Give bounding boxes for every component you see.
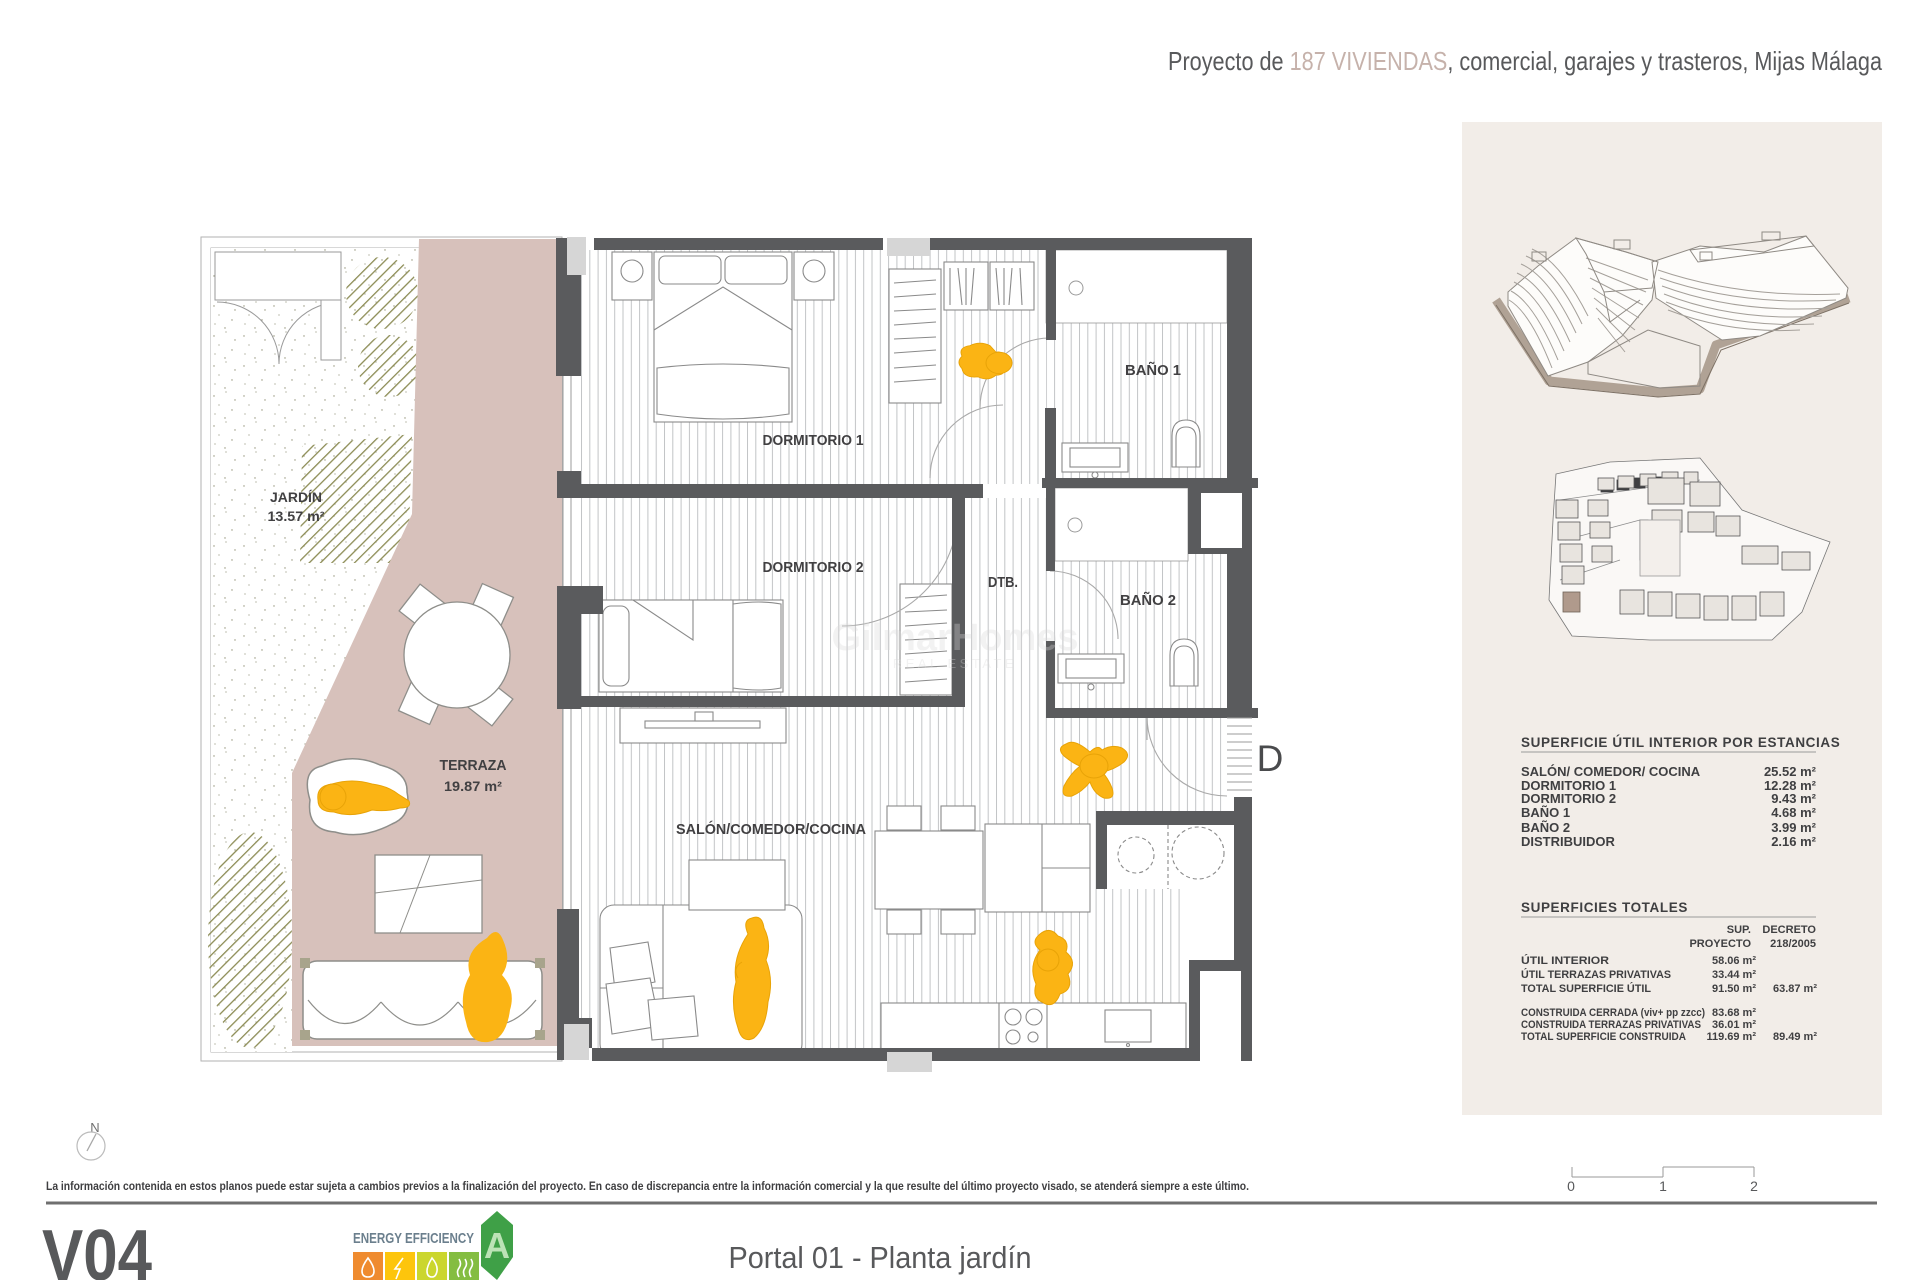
svg-text:DORMITORIO 1: DORMITORIO 1 bbox=[763, 433, 864, 449]
svg-text:ENERGY EFFICIENCY: ENERGY EFFICIENCY bbox=[353, 1231, 474, 1247]
svg-text:DORMITORIO 2: DORMITORIO 2 bbox=[763, 560, 864, 576]
svg-text:D: D bbox=[1257, 738, 1284, 779]
svg-text:Portal 01 - Planta jardín: Portal 01 - Planta jardín bbox=[729, 1240, 1032, 1275]
svg-text:Proyecto de 187 VIVIENDAS, com: Proyecto de 187 VIVIENDAS, comercial, ga… bbox=[1168, 46, 1882, 76]
svg-text:TOTAL SUPERFICIE CONSTRUIDA: TOTAL SUPERFICIE CONSTRUIDA bbox=[1521, 1031, 1686, 1043]
svg-text:SUP.: SUP. bbox=[1727, 924, 1751, 936]
svg-text:ÚTIL TERRAZAS PRIVATIVAS: ÚTIL TERRAZAS PRIVATIVAS bbox=[1521, 968, 1671, 981]
svg-text:V04: V04 bbox=[42, 1216, 152, 1280]
svg-text:GilmarHomes: GilmarHomes bbox=[831, 617, 1078, 659]
svg-text:63.87 m²: 63.87 m² bbox=[1773, 983, 1817, 995]
svg-text:ÚTIL INTERIOR: ÚTIL INTERIOR bbox=[1521, 954, 1609, 967]
svg-text:2.16 m²: 2.16 m² bbox=[1771, 834, 1816, 849]
svg-text:DTB.: DTB. bbox=[988, 575, 1018, 591]
svg-text:9.43 m²: 9.43 m² bbox=[1771, 791, 1816, 806]
svg-text:119.69 m²: 119.69 m² bbox=[1706, 1031, 1756, 1043]
svg-text:TOTAL SUPERFICIE ÚTIL: TOTAL SUPERFICIE ÚTIL bbox=[1521, 982, 1651, 995]
svg-text:DORMITORIO 2: DORMITORIO 2 bbox=[1521, 791, 1616, 806]
svg-text:PROYECTO: PROYECTO bbox=[1689, 938, 1751, 950]
svg-text:2: 2 bbox=[1750, 1178, 1758, 1194]
svg-text:218/2005: 218/2005 bbox=[1770, 938, 1816, 950]
svg-text:BAÑO 1: BAÑO 1 bbox=[1521, 805, 1570, 820]
svg-text:33.44 m²: 33.44 m² bbox=[1712, 969, 1756, 981]
svg-text:BAÑO 2: BAÑO 2 bbox=[1521, 820, 1570, 835]
svg-text:La información contenida en es: La información contenida en estos planos… bbox=[46, 1179, 1249, 1193]
svg-text:REAL ESTATE: REAL ESTATE bbox=[893, 656, 1017, 671]
svg-text:BAÑO 2: BAÑO 2 bbox=[1120, 591, 1176, 609]
svg-text:83.68 m²: 83.68 m² bbox=[1712, 1007, 1756, 1019]
svg-text:SUPERFICIE ÚTIL INTERIOR POR E: SUPERFICIE ÚTIL INTERIOR POR ESTANCIAS bbox=[1521, 735, 1840, 750]
svg-text:CONSTRUIDA TERRAZAS PRIVATIVAS: CONSTRUIDA TERRAZAS PRIVATIVAS bbox=[1521, 1019, 1701, 1031]
svg-text:DISTRIBUIDOR: DISTRIBUIDOR bbox=[1521, 834, 1616, 849]
svg-text:91.50 m²: 91.50 m² bbox=[1712, 983, 1756, 995]
svg-text:36.01 m²: 36.01 m² bbox=[1712, 1019, 1756, 1031]
svg-text:SALÓN/COMEDOR/COCINA: SALÓN/COMEDOR/COCINA bbox=[676, 820, 867, 838]
svg-text:JARDÍN: JARDÍN bbox=[270, 489, 322, 505]
svg-text:0: 0 bbox=[1567, 1178, 1575, 1194]
svg-text:4.68 m²: 4.68 m² bbox=[1771, 805, 1816, 820]
svg-text:19.87 m²: 19.87 m² bbox=[444, 778, 502, 794]
svg-text:58.06 m²: 58.06 m² bbox=[1712, 955, 1756, 967]
svg-text:CONSTRUIDA CERRADA (viv+ pp zz: CONSTRUIDA CERRADA (viv+ pp zzcc) bbox=[1521, 1007, 1705, 1019]
svg-text:1: 1 bbox=[1659, 1178, 1667, 1194]
svg-text:89.49 m²: 89.49 m² bbox=[1773, 1031, 1817, 1043]
svg-text:SUPERFICIES TOTALES: SUPERFICIES TOTALES bbox=[1521, 900, 1688, 915]
svg-text:DECRETO: DECRETO bbox=[1762, 924, 1816, 936]
svg-text:A: A bbox=[484, 1225, 510, 1266]
svg-text:25.52 m²: 25.52 m² bbox=[1764, 764, 1817, 779]
svg-text:13.57 m²: 13.57 m² bbox=[268, 509, 326, 524]
svg-text:3.99 m²: 3.99 m² bbox=[1771, 820, 1816, 835]
svg-text:TERRAZA: TERRAZA bbox=[440, 758, 508, 774]
svg-text:BAÑO 1: BAÑO 1 bbox=[1125, 361, 1181, 379]
svg-text:SALÓN/ COMEDOR/ COCINA: SALÓN/ COMEDOR/ COCINA bbox=[1521, 764, 1701, 779]
